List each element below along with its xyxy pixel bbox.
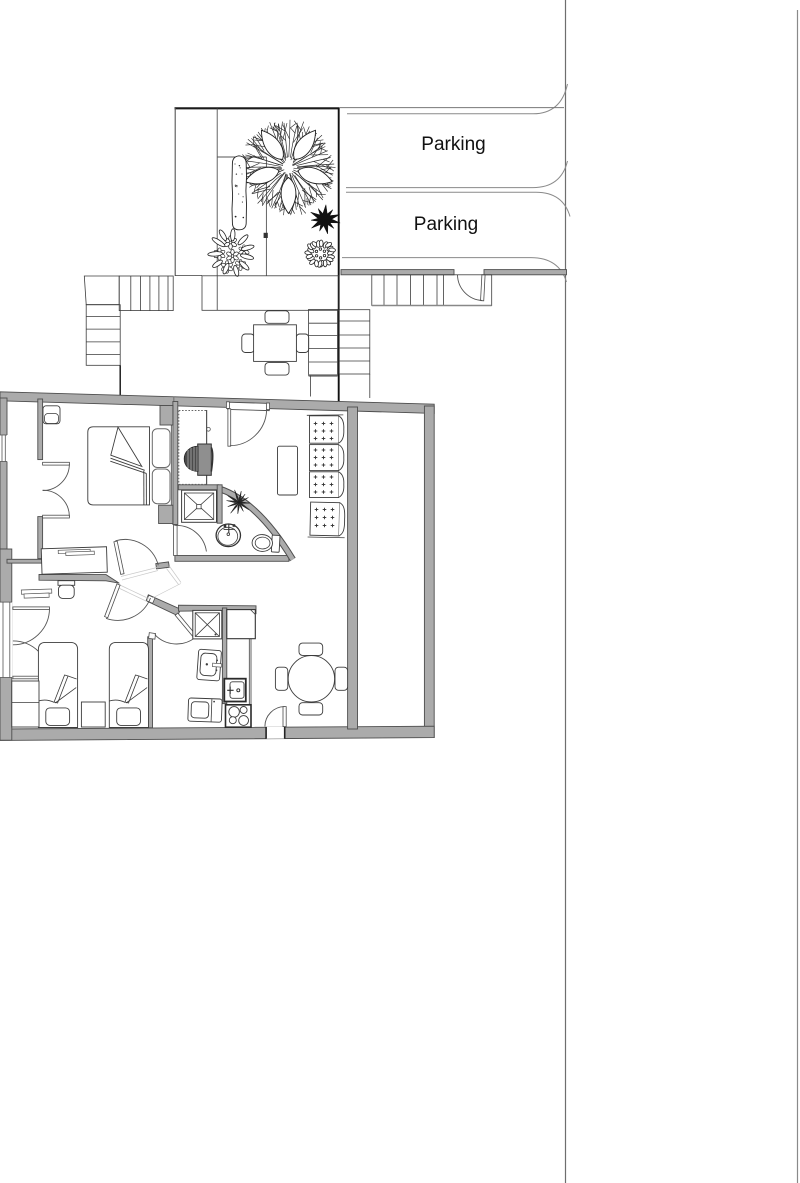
svg-text:Parking: Parking [421, 134, 485, 155]
svg-text:Parking: Parking [414, 214, 478, 235]
